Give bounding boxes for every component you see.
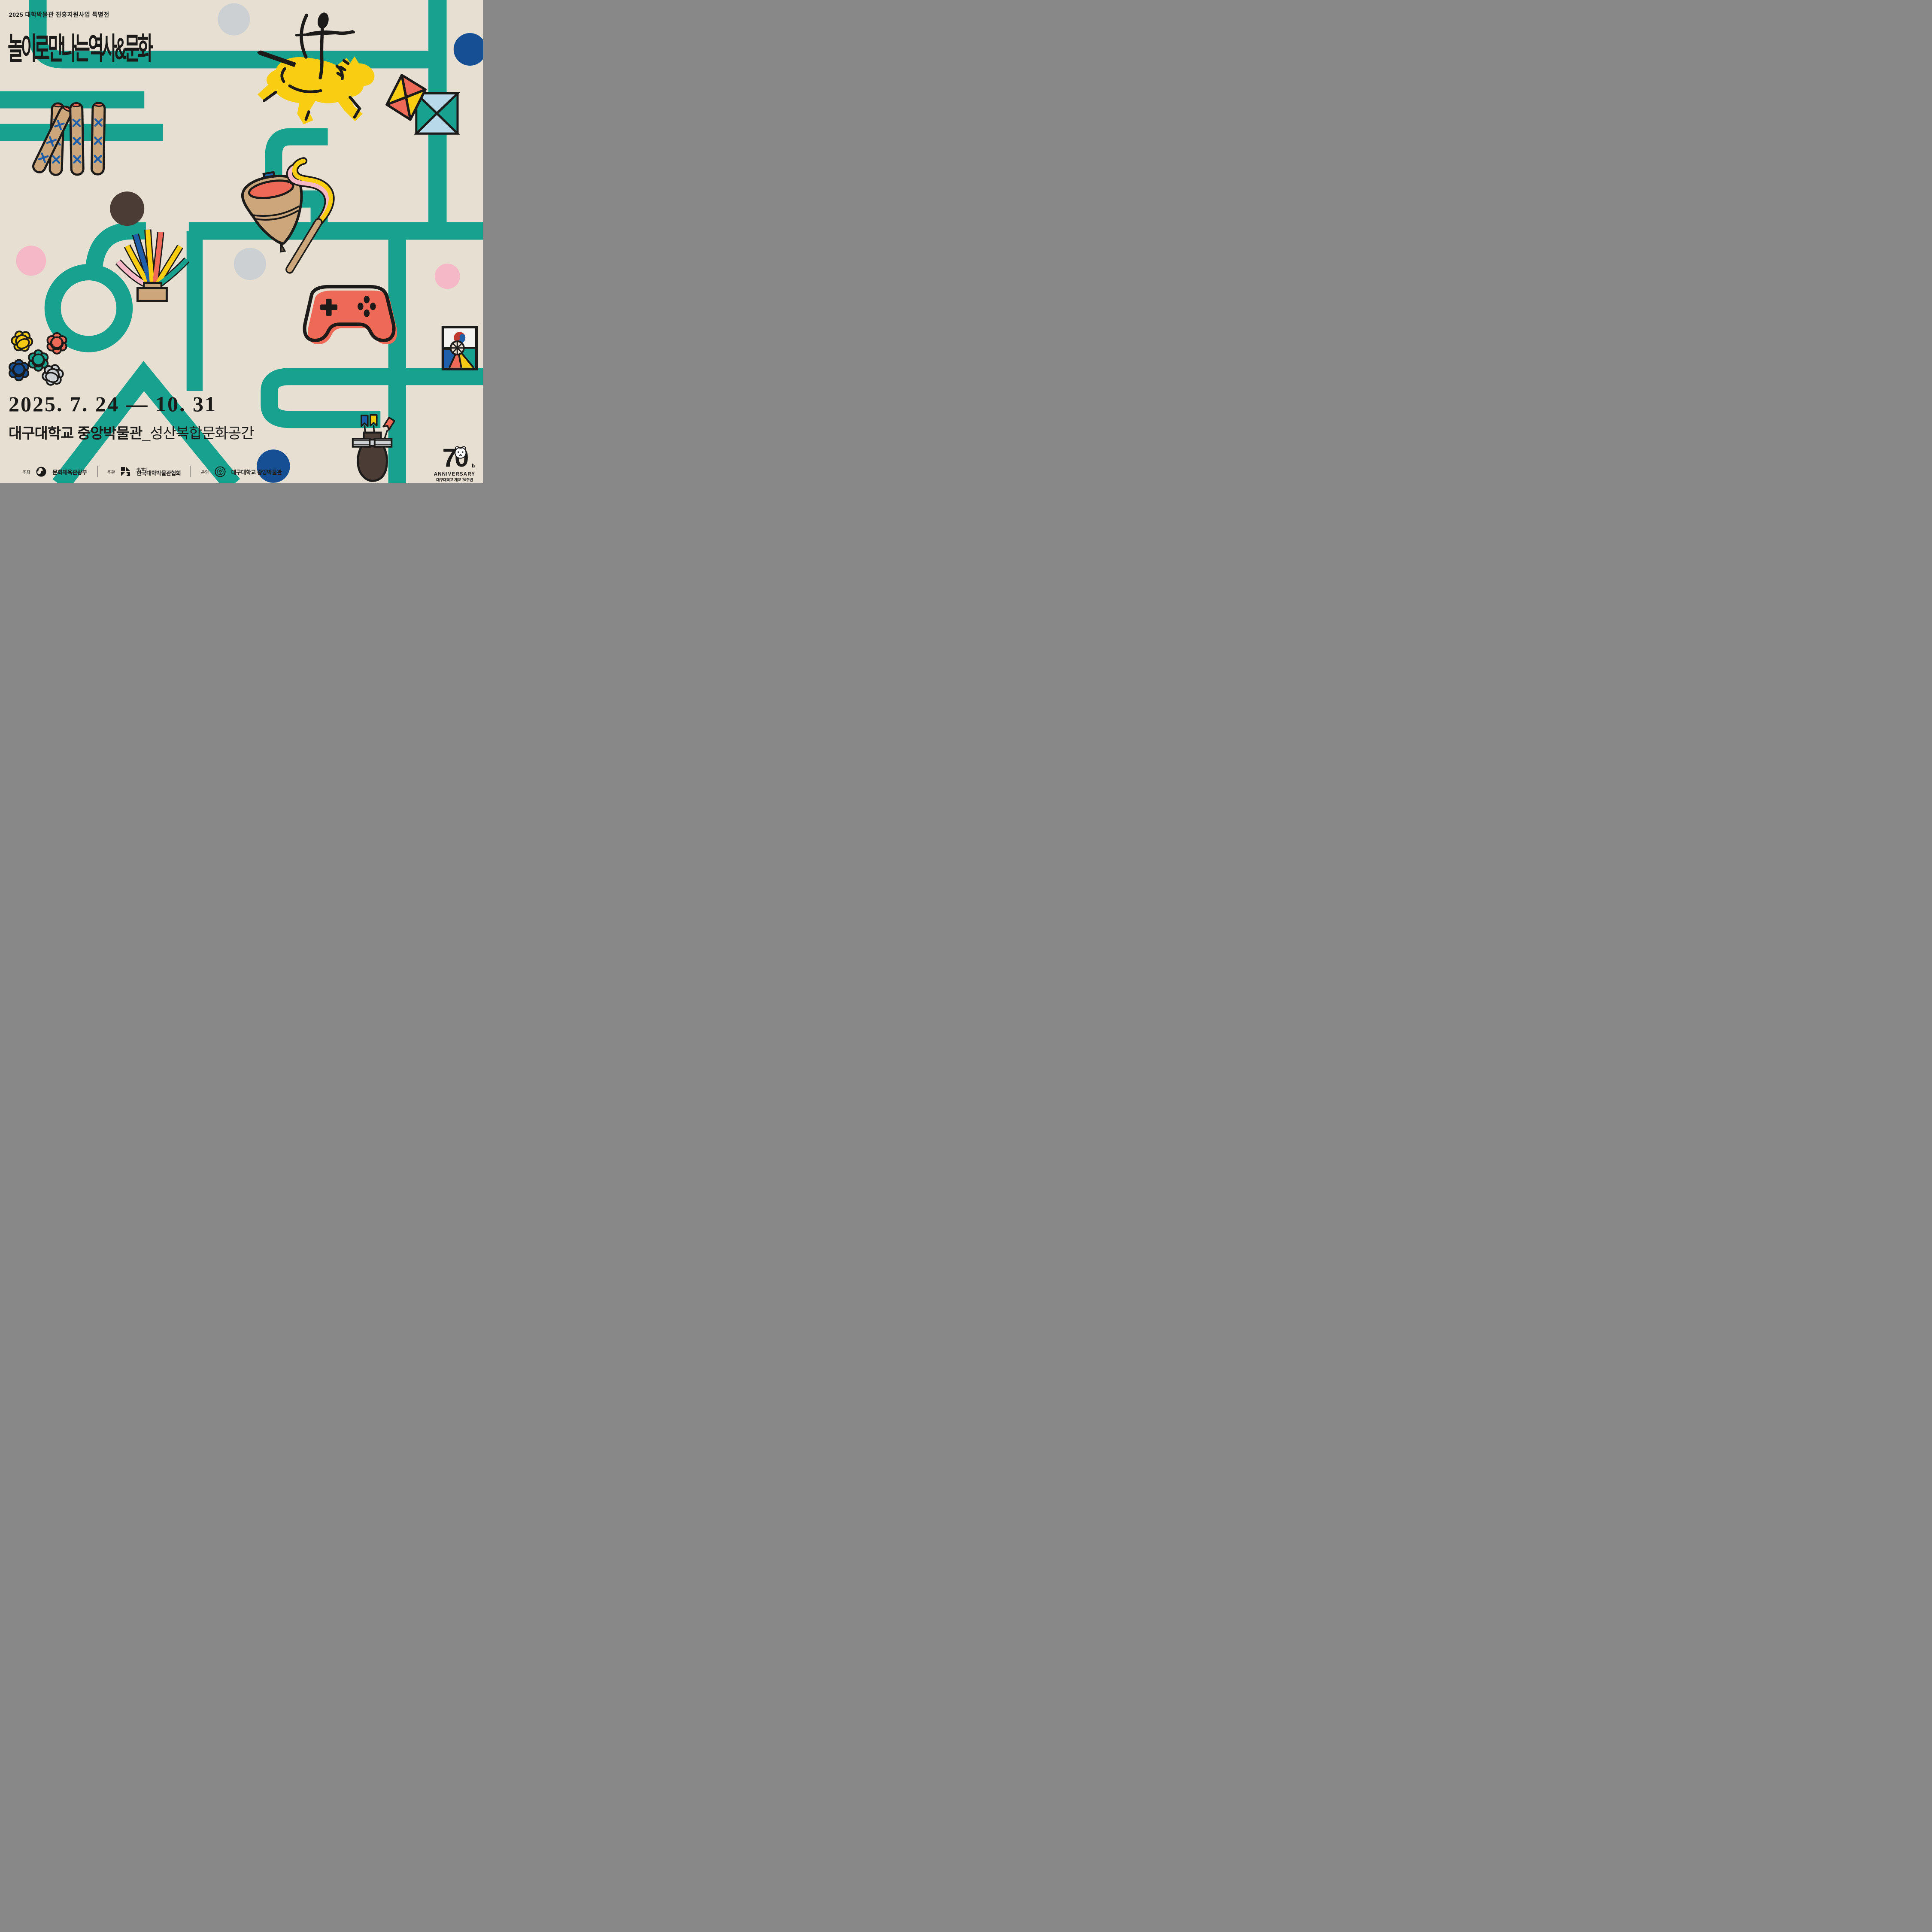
credit-org-block: 사단법인 한국대학박물관협회	[136, 468, 181, 476]
credit-role: 운영	[201, 469, 209, 475]
exhibition-dates: 2025. 7. 24 — 10. 31	[9, 391, 217, 416]
tiger-mascot-icon	[453, 445, 467, 460]
venue-name: 대구대학교 중앙박물관	[9, 425, 142, 442]
anniversary-line1: 대구대학교 개교 70주년	[433, 478, 476, 482]
kaum-logo-icon	[121, 467, 131, 477]
blue-dot	[454, 33, 483, 66]
venue-space: _성산복합문화공간	[142, 425, 254, 442]
exhibition-poster: 2025 대학박물관 진흥지원사업 특별전 놀이로 만나는 역사&문화 2025…	[0, 0, 483, 483]
credit-org: 한국대학박물관협회	[136, 470, 181, 476]
credits-divider	[191, 466, 191, 477]
hwatu-card-icon	[443, 327, 476, 369]
venue-line: 대구대학교 중앙박물관_성산복합문화공간	[9, 422, 254, 443]
gray-dot	[234, 248, 266, 280]
credit-org: 대구대학교 중앙박물관	[231, 468, 282, 476]
mcst-logo-icon	[36, 466, 47, 477]
anniversary-number: 70 th	[443, 444, 467, 471]
credits-divider	[97, 466, 97, 477]
credit-org: 문화체육관광부	[52, 468, 87, 476]
credit-role: 주관	[107, 469, 115, 475]
daegu-univ-seal-icon	[215, 466, 226, 477]
gonggi-pieces-icon	[9, 328, 66, 388]
brown-dot	[110, 191, 144, 226]
eyebrow-text: 2025 대학박물관 진흥지원사업 특별전	[9, 10, 109, 19]
credit-role: 주최	[22, 469, 30, 475]
anniversary-word: ANNIVERSARY	[433, 472, 476, 477]
gray-dot	[218, 3, 250, 35]
tuho-handles	[353, 439, 391, 446]
game-controller-icon	[305, 287, 397, 344]
square-kite	[416, 93, 458, 133]
credits-row: 주최 문화체육관광부 주관 사단법인 한국대학박물관협회 운영 대구대학교 중앙…	[22, 466, 282, 477]
pink-dot	[435, 264, 460, 289]
anniversary-suffix: th	[472, 463, 473, 469]
wheel-symbol	[451, 341, 464, 355]
kites-icon	[387, 75, 458, 133]
poster-title: 놀이로 만나는 역사&문화	[8, 24, 151, 68]
anniversary-logo: 70 th ANNIVERSARY 대구대학교 개교 70주년 1956 ▶ 2…	[433, 444, 476, 483]
pink-dot	[16, 246, 46, 276]
